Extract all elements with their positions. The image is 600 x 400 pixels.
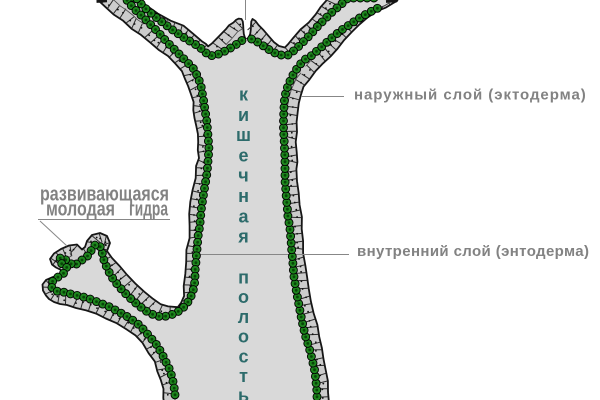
svg-text:ш: ш (236, 125, 251, 145)
svg-text:о: о (238, 287, 249, 307)
svg-text:я: я (237, 227, 249, 247)
svg-text:п: п (238, 268, 249, 288)
svg-text:внутренний слой (энтодерма): внутренний слой (энтодерма) (357, 243, 589, 260)
svg-text:ь: ь (238, 386, 249, 400)
svg-text:н: н (238, 186, 249, 206)
svg-text:о: о (238, 327, 249, 347)
svg-text:а: а (238, 206, 249, 226)
svg-text:гидра: гидра (129, 199, 169, 221)
svg-text:с: с (238, 346, 248, 366)
svg-text:е: е (238, 145, 248, 165)
svg-text:и: и (238, 105, 249, 125)
svg-text:т: т (239, 366, 248, 386)
svg-text:молодая: молодая (46, 199, 115, 221)
svg-text:наружный слой (эктодерма): наружный слой (эктодерма) (354, 87, 587, 104)
svg-text:л: л (238, 307, 249, 327)
svg-text:ч: ч (238, 166, 248, 186)
svg-text:к: к (239, 85, 249, 105)
